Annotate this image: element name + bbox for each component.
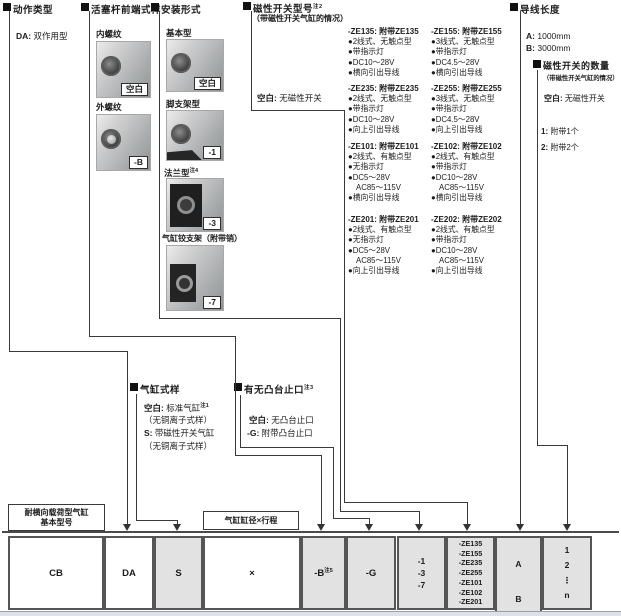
- code-line: 1: [565, 543, 570, 558]
- pin-ring: [176, 275, 193, 292]
- feature-line: ●向上引出导线: [431, 125, 502, 135]
- connector-line: [89, 11, 90, 336]
- code-line: n: [564, 588, 569, 603]
- ordering-code-diagram: 动作类型 DA: 双作用型 活塞杆前端式样 内螺纹 空白 外螺纹 -B 安装形式…: [0, 0, 621, 616]
- switch-model-block: -ZE201: 附带ZE201 ●2线式、有触点型●无指示灯●DC5～28VAC…: [348, 214, 419, 276]
- section-title: 磁性开关的数量: [543, 59, 610, 72]
- section-boss: 有无凸台止口注3: [234, 382, 314, 396]
- feature-line: ●横向引出导线: [348, 68, 419, 78]
- code-line: -ZE201: [459, 597, 483, 607]
- arrow-down-icon: [317, 524, 325, 531]
- switch-model-heading: -ZE201: 附带ZE201: [348, 214, 419, 225]
- option-code-box: -B: [129, 156, 148, 169]
- code-box-boss: -G: [346, 536, 396, 610]
- cylinder-spec-line: （无铜离子式样）: [144, 414, 212, 426]
- connector-line: [340, 511, 420, 512]
- section-marker-icon: [130, 383, 138, 391]
- feature-line: AC85～115V: [431, 183, 502, 193]
- lead-length-option: B: 3000mm: [526, 43, 570, 53]
- feature-line: ●向上引出导线: [431, 266, 502, 276]
- feature-line: ●DC10～28V: [348, 58, 419, 68]
- section-title: 安装形式: [161, 2, 201, 16]
- code-line: -1: [418, 555, 426, 567]
- feature-line: ●无指示灯: [348, 162, 419, 172]
- clevis-bracket: [170, 264, 196, 302]
- feature-line: ●横向引出导线: [431, 193, 502, 203]
- arrow-down-icon: [563, 524, 571, 531]
- base-model-label: 耐横向载荷型气缸 基本型号: [8, 504, 105, 531]
- code-line: -7: [418, 579, 426, 591]
- code-line: -ZE102: [459, 588, 483, 598]
- section-marker-icon: [151, 3, 159, 11]
- feature-line: AC85～115V: [348, 256, 419, 266]
- code-line: B: [515, 593, 521, 605]
- switch-model-heading: -ZE202: 附带ZE202: [431, 214, 502, 225]
- section-cylinder-spec: 气缸式样: [130, 382, 180, 396]
- section-marker-icon: [3, 3, 11, 11]
- option-code-box: -3: [203, 217, 221, 230]
- code-box-bore-stroke: ×: [203, 536, 301, 610]
- cylinder-photo-flange: -3: [166, 178, 224, 232]
- boss-option: -G: 附带凸台止口: [247, 427, 313, 439]
- section-marker-icon: [81, 3, 89, 11]
- connector-line: [344, 502, 468, 503]
- switch-model-block: -ZE202: 附带ZE202 ●2线式、有触点型●带指示灯●DC10～28VA…: [431, 214, 502, 276]
- code-line: -ZE135: [459, 539, 483, 549]
- bore-stroke-label: 气缸缸径×行程: [203, 511, 299, 530]
- connector-line: [240, 395, 241, 447]
- cylinder-photo-foot-bracket: -1: [166, 110, 224, 161]
- feature-line: ●DC5～28V: [348, 173, 419, 183]
- feature-line: ●3线式、无触点型: [431, 37, 502, 47]
- feature-line: ●2线式、有触点型: [431, 152, 502, 162]
- connector-line: [127, 351, 128, 524]
- switch-model-heading: -ZE102: 附带ZE102: [431, 141, 502, 152]
- feature-line: ●带指示灯: [431, 104, 502, 114]
- section-marker-icon: [243, 2, 251, 10]
- code-line: ⋮: [563, 573, 572, 588]
- connector-line: [251, 110, 344, 111]
- cylinder-cap: [171, 53, 191, 73]
- switch-model-block: -ZE255: 附带ZE255 ●3线式、无触点型●带指示灯●DC4.5～28V…: [431, 83, 502, 135]
- arrow-down-icon: [173, 524, 181, 531]
- feature-line: ●DC5～28V: [348, 246, 419, 256]
- option-label: 双作用型: [33, 31, 67, 41]
- connector-line: [537, 445, 568, 446]
- feature-line: ●无指示灯: [348, 235, 419, 245]
- feature-line: AC85～115V: [431, 256, 502, 266]
- section-title: 导线长度: [520, 2, 560, 16]
- option-code-box: 空白: [194, 77, 221, 90]
- flange-plate: [170, 184, 202, 227]
- arrow-down-icon: [516, 524, 524, 531]
- switch-none-option: 空白: 无磁性开关: [257, 92, 322, 104]
- section-marker-icon: [533, 60, 541, 68]
- cylinder-spec-line: （无铜离子式样）: [144, 440, 212, 452]
- code-line: A: [515, 558, 521, 570]
- feature-line: AC85～115V: [348, 183, 419, 193]
- section-lead-length: 导线长度: [510, 2, 560, 16]
- connector-line: [136, 520, 178, 521]
- qty-option: 1: 附带1个: [541, 126, 579, 137]
- switch-model-block: -ZE235: 附带ZE235 ●2线式、无触点型●带指示灯●DC10～28V●…: [348, 83, 419, 135]
- arrow-down-icon: [123, 524, 131, 531]
- switch-model-features: ●2线式、有触点型●带指示灯●DC10～28VAC85～115V●向上引出导线: [431, 225, 502, 276]
- code-line: -3: [418, 567, 426, 579]
- code-line: -ZE235: [459, 558, 483, 568]
- feature-line: ●DC10～28V: [348, 115, 419, 125]
- switch-model-heading: -ZE255: 附带ZE255: [431, 83, 502, 94]
- connector-line: [333, 518, 370, 519]
- option-code-box: 空白: [121, 83, 148, 96]
- section-switch-qty: 磁性开关的数量: [533, 59, 610, 72]
- switch-model-heading: -ZE135: 附带ZE135: [348, 26, 419, 37]
- code-box-spec: S: [154, 536, 203, 610]
- switch-model-features: ●2线式、有触点型●带指示灯●DC10～28VAC85～115V●横向引出导线: [431, 152, 502, 203]
- connector-line: [344, 110, 345, 502]
- section-action-type: 动作类型: [3, 2, 53, 16]
- feature-line: ●2线式、无触点型: [348, 94, 419, 104]
- cylinder-photo-male-thread: -B: [96, 114, 151, 171]
- feature-line: ●向上引出导线: [348, 125, 419, 135]
- feature-line: ●带指示灯: [431, 235, 502, 245]
- feature-line: ●DC10～28V: [431, 173, 502, 183]
- switch-model-heading: -ZE155: 附带ZE155: [431, 26, 502, 37]
- switch-model-features: ●3线式、无触点型●带指示灯●DC4.5～28V●横向引出导线: [431, 37, 502, 78]
- feature-line: ●带指示灯: [431, 162, 502, 172]
- rod-end-option-label: 内螺纹: [96, 28, 122, 40]
- code-box-switch-model: -ZE135-ZE155-ZE235-ZE255-ZE101-ZE102-ZE2…: [446, 536, 495, 610]
- code-box-rod-end: -B注5: [301, 536, 346, 610]
- connector-line: [9, 351, 128, 352]
- code-line: 2: [565, 558, 570, 573]
- feature-line: ●带指示灯: [348, 104, 419, 114]
- section-subtitle: （带磁性开关气缸的情况）: [252, 13, 348, 24]
- code-box-lead-length: AB: [495, 536, 542, 616]
- code-line: -ZE101: [459, 578, 483, 588]
- section-subtitle: （带磁性开关气缸的情况）: [543, 73, 619, 82]
- arrow-down-icon: [415, 524, 423, 531]
- mount-option-label: 脚支架型: [166, 98, 200, 110]
- section-title: 气缸式样: [140, 382, 180, 396]
- bore-ring: [177, 196, 195, 214]
- cylinder-cap: [101, 56, 121, 76]
- feature-line: ●2线式、无触点型: [348, 37, 419, 47]
- cylinder-cap: [171, 124, 191, 144]
- connector-line: [333, 447, 334, 518]
- arrow-down-icon: [365, 524, 373, 531]
- feature-line: ●DC4.5～28V: [431, 58, 502, 68]
- section-title: 有无凸台止口注3: [244, 382, 314, 396]
- feature-line: ●横向引出导线: [348, 193, 419, 203]
- cylinder-photo-basic: 空白: [166, 39, 224, 92]
- rod-end-option-label: 外螺纹: [96, 101, 122, 113]
- code-box-switch-qty: 12⋮n: [542, 536, 592, 610]
- foot-bracket: [167, 149, 202, 160]
- feature-line: ●2线式、有触点型: [431, 225, 502, 235]
- switch-model-features: ●3线式、无触点型●带指示灯●DC4.5～28V●向上引出导线: [431, 94, 502, 135]
- feature-line: ●DC4.5～28V: [431, 115, 502, 125]
- connector-line: [251, 11, 252, 110]
- connector-line: [240, 447, 334, 448]
- connector-line: [321, 455, 322, 524]
- option-code-box: -1: [203, 146, 221, 159]
- switch-model-features: ●2线式、无触点型●带指示灯●DC10～28V●横向引出导线: [348, 37, 419, 78]
- connector-line: [159, 11, 160, 318]
- code-line: -ZE155: [459, 549, 483, 559]
- switch-model-block: -ZE135: 附带ZE135 ●2线式、无触点型●带指示灯●DC10～28V●…: [348, 26, 419, 78]
- feature-line: ●3线式、无触点型: [431, 94, 502, 104]
- feature-line: ●DC10～28V: [431, 246, 502, 256]
- code-box-base: CB: [8, 536, 104, 610]
- switch-model-heading: -ZE101: 附带ZE101: [348, 141, 419, 152]
- mount-option-label: 法兰型注4: [164, 166, 198, 179]
- option-code-box: -7: [203, 296, 221, 309]
- connector-line: [89, 336, 236, 337]
- option-code: DA:: [16, 31, 31, 41]
- section-rod-end: 活塞杆前端式样: [81, 2, 161, 16]
- model-row-line: [2, 531, 619, 533]
- connector-line: [567, 445, 568, 524]
- switch-model-block: -ZE102: 附带ZE102 ●2线式、有触点型●带指示灯●DC10～28VA…: [431, 141, 502, 203]
- cylinder-photo-female-thread: 空白: [96, 41, 151, 98]
- cylinder-spec-line: S: 带磁性开关气缸: [144, 427, 214, 439]
- cylinder-spec-line: 空白: 标准气缸注1: [144, 401, 209, 414]
- qty-option: 2: 附带2个: [541, 142, 579, 153]
- cylinder-photo-clevis: -7: [166, 245, 224, 311]
- code-box-action: DA: [104, 536, 154, 610]
- code-line: -ZE255: [459, 568, 483, 578]
- feature-line: ●向上引出导线: [348, 266, 419, 276]
- arrow-down-icon: [463, 524, 471, 531]
- mount-option-label: 基本型: [166, 27, 192, 39]
- connector-line: [235, 455, 322, 456]
- code-box-mounting: -1-3-7: [397, 536, 446, 610]
- lead-length-option: A: 1000mm: [526, 31, 570, 41]
- connector-line: [467, 502, 468, 524]
- switch-model-features: ●2线式、有触点型●无指示灯●DC5～28VAC85～115V●向上引出导线: [348, 225, 419, 276]
- feature-line: ●横向引出导线: [431, 68, 502, 78]
- switch-model-heading: -ZE235: 附带ZE235: [348, 83, 419, 94]
- connector-line: [537, 70, 538, 445]
- connector-line: [419, 511, 420, 524]
- action-type-option: DA: 双作用型: [16, 30, 68, 42]
- switch-model-block: -ZE101: 附带ZE101 ●2线式、有触点型●无指示灯●DC5～28VAC…: [348, 141, 419, 203]
- switch-model-features: ●2线式、有触点型●无指示灯●DC5～28VAC85～115V●横向引出导线: [348, 152, 419, 203]
- next-section-edge: [0, 611, 621, 616]
- connector-line: [159, 318, 341, 319]
- qty-none-option: 空白: 无磁性开关: [544, 93, 605, 104]
- switch-model-block: -ZE155: 附带ZE155 ●3线式、无触点型●带指示灯●DC4.5～28V…: [431, 26, 502, 78]
- mount-option-label: 气缸铰支架（附带销）: [162, 233, 242, 244]
- feature-line: ●带指示灯: [431, 47, 502, 57]
- feature-line: ●2线式、有触点型: [348, 225, 419, 235]
- connector-line: [235, 336, 236, 455]
- feature-line: ●2线式、有触点型: [348, 152, 419, 162]
- connector-line: [9, 11, 10, 351]
- feature-line: ●带指示灯: [348, 47, 419, 57]
- connector-line: [340, 318, 341, 511]
- section-title: 动作类型: [13, 2, 53, 16]
- section-marker-icon: [510, 3, 518, 11]
- connector-line: [136, 394, 137, 520]
- switch-model-features: ●2线式、无触点型●带指示灯●DC10～28V●向上引出导线: [348, 94, 419, 135]
- boss-option: 空白: 无凸台止口: [249, 414, 314, 426]
- connector-line: [520, 11, 521, 524]
